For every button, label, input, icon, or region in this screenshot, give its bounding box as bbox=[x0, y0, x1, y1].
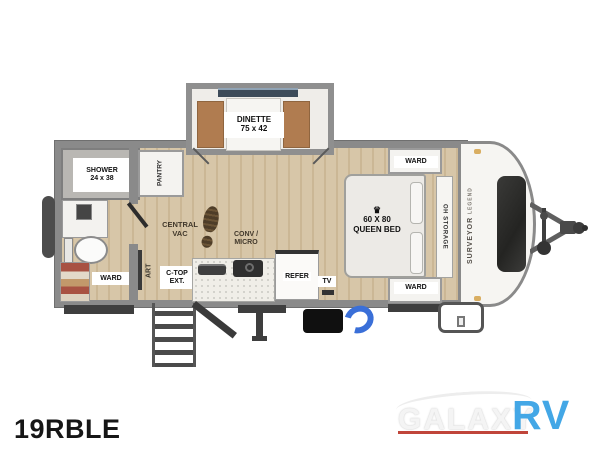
central-vac-label: CENTRAL VAC bbox=[156, 221, 204, 238]
bed-label: ♛ 60 X 80 QUEEN BED bbox=[346, 205, 408, 234]
dinette-bench-right bbox=[283, 101, 310, 148]
dinette-label: DINETTE 75 x 42 bbox=[224, 112, 284, 138]
art-niche bbox=[138, 250, 142, 290]
clearance-light-bottom bbox=[474, 296, 481, 301]
art-label: ART bbox=[143, 252, 155, 290]
shower-label: SHOWER 24 x 38 bbox=[73, 158, 131, 192]
refer-label: REFER bbox=[283, 272, 311, 282]
front-cap-window bbox=[497, 176, 526, 272]
stove-burner bbox=[245, 263, 254, 272]
stabilizer-foot bbox=[252, 336, 267, 341]
dinette-bench-left bbox=[197, 101, 224, 148]
ctop-ext-label: C-TOP EXT. bbox=[160, 266, 194, 289]
refrigerator: REFER bbox=[275, 250, 319, 300]
rear-bumper bbox=[42, 196, 55, 258]
tv-mount bbox=[322, 290, 334, 295]
floorplan-page: SURVEYOR LEGEND DINETTE 75 x 42 SHOWER 2… bbox=[0, 0, 614, 460]
kitchen-sink bbox=[198, 264, 226, 275]
cap-brand-text: SURVEYOR LEGEND bbox=[463, 172, 478, 280]
chassis-bar-rear bbox=[64, 305, 134, 314]
ward-bath-label: WARD bbox=[92, 272, 130, 285]
logo-underline bbox=[398, 431, 528, 434]
dinette-window bbox=[218, 88, 298, 97]
bath-sink bbox=[76, 204, 92, 220]
linen-shelf bbox=[60, 262, 90, 302]
logo-rv-text: RV bbox=[512, 392, 570, 439]
tv-label: TV bbox=[318, 276, 336, 287]
ward-top-label: WARD bbox=[394, 156, 438, 168]
stabilizer-jack bbox=[256, 313, 263, 337]
cap-brand-secondary: LEGEND bbox=[468, 188, 474, 215]
clearance-light-top bbox=[474, 149, 481, 154]
pantry-label: PANTRY bbox=[150, 153, 170, 194]
chassis-bar-center bbox=[238, 305, 286, 313]
utility-tank bbox=[303, 309, 343, 333]
oh-storage-label: OH STORAGE bbox=[436, 178, 453, 276]
ward-bottom-label: WARD bbox=[394, 282, 438, 294]
pillow-bottom bbox=[410, 232, 423, 274]
entry-steps bbox=[152, 303, 196, 367]
pillow-top bbox=[410, 182, 423, 224]
toilet bbox=[74, 236, 108, 264]
model-number: 19RBLE bbox=[14, 414, 121, 445]
bath-wall-lower bbox=[129, 244, 138, 302]
bath-wall-upper bbox=[129, 148, 138, 204]
hitch-a-frame bbox=[530, 190, 588, 266]
front-step-latch bbox=[457, 316, 465, 327]
crown-icon: ♛ bbox=[346, 205, 408, 215]
cap-brand-primary: SURVEYOR bbox=[467, 217, 474, 264]
conv-micro-label: CONV / MICRO bbox=[224, 231, 268, 247]
toilet-tank bbox=[64, 238, 73, 264]
